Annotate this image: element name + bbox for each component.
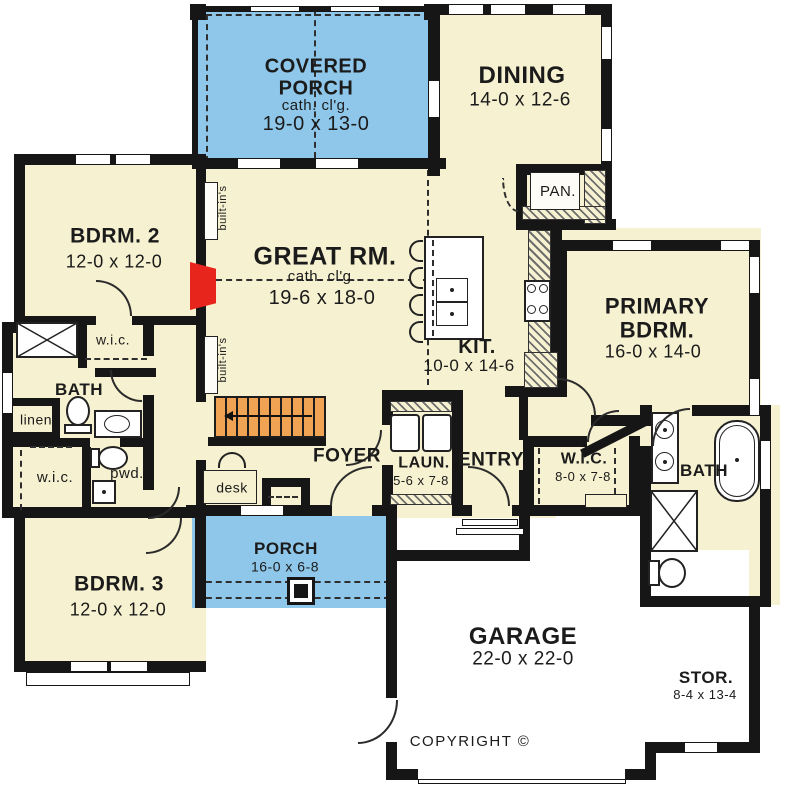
range-burner [539,305,548,314]
room-label-bath-left: BATH [55,381,103,399]
porch-edge-dashed-line [206,14,208,162]
laundry-counter [390,494,452,505]
window [115,154,151,165]
room-label-wic-upper: w.i.c. [96,332,130,347]
room-label-pantry: PAN. [540,184,576,200]
room-dims-primary-wic: 8-0 x 7-8 [555,470,611,484]
window [490,4,526,15]
wall [195,512,206,608]
builtins-label: built-in's [218,185,230,230]
room-label-dining: DINING [479,63,566,89]
dryer [422,414,452,452]
toilet-bowl [66,396,90,426]
room-dims-bedroom2: 12-0 x 12-0 [66,252,163,271]
room-label-foyer: FOYER [313,447,381,468]
room-dims-covered-porch: 19-0 x 13-0 [263,114,370,136]
sink-drain [663,460,667,464]
window [237,158,281,169]
fireplace [190,262,216,310]
window [612,240,652,251]
door-arc [358,700,398,744]
entry-step [456,528,524,535]
wall [519,390,528,440]
built-in-niche [204,182,218,240]
wall [551,219,562,359]
room-label-porch: PORCH [254,540,318,558]
wall [143,395,154,443]
range-burner [527,284,536,293]
room-label-linen: linen [20,412,52,427]
wall [523,436,534,516]
window [315,158,359,169]
wall [428,4,440,84]
room-dims-kitchen: 10-0 x 14-6 [423,357,515,375]
stairs-direction-line [232,415,312,417]
wall [428,118,440,176]
wall [2,322,13,518]
room-dims-dining: 14-0 x 12-6 [469,91,571,112]
window [749,378,760,416]
room-label-entry: ENTRY [458,451,524,472]
wall [760,405,771,607]
powder-toilet-tank [90,448,100,468]
primary-toilet-bowl [658,558,686,588]
window [749,256,760,294]
wall [14,154,25,330]
porch-column-core [294,584,308,598]
range-burner [527,305,536,314]
wall [397,550,529,561]
window [601,26,612,60]
closet-shelf-dashed [30,446,72,448]
sink-drain [102,490,106,494]
builtins-label: built-in's [218,337,230,382]
washer [390,414,420,452]
wall [78,316,87,368]
wall [519,516,530,561]
window [2,372,13,414]
window [552,4,586,15]
room-label-wic-lower: w.i.c. [37,470,73,486]
tub-drain [735,458,739,462]
wall [629,436,640,516]
wall [382,390,462,401]
shower [16,322,78,358]
wall [301,478,310,516]
closet-rod-dashed [538,448,540,504]
range-burner [539,284,548,293]
wall [192,6,198,169]
window [448,4,484,15]
room-label-primary-wic: W.I.C. [561,450,608,467]
window [75,154,111,165]
window [601,128,612,162]
bay-window-outline [26,672,190,686]
wall [2,507,206,518]
window [684,742,718,753]
garage-door-line [418,779,626,784]
wall [749,607,760,753]
window [720,240,750,251]
wall [382,465,393,516]
room-note-great-room: cath. cl'g. [288,269,356,285]
room-dims-laundry: 5-6 x 7-8 [393,474,449,488]
window [330,6,380,12]
room-label-great-room: GREAT RM. [254,244,397,271]
room-label-covered-porch: COVERED PORCH [251,56,381,99]
primary-toilet-tank [648,560,660,586]
desk-label: desk [216,480,248,495]
wall [192,6,440,12]
built-in-niche [204,336,218,394]
room-dims-great-room: 19-6 x 18-0 [269,288,376,310]
wall [143,443,154,490]
vanity-sink [104,415,130,433]
wall [143,316,154,356]
window [760,440,771,490]
room-label-bedroom2: BDRM. 2 [70,226,160,249]
window [240,505,284,516]
entry-step [462,519,518,526]
window [250,6,300,12]
room-dims-bedroom3: 12-0 x 12-0 [70,600,167,619]
sink-drain [450,312,454,316]
window [70,661,108,672]
room-dims-primary-bedroom: 16-0 x 14-0 [605,342,702,361]
room-label-storage: STOR. [679,669,733,687]
closet-shelf-dashed [268,496,298,498]
room-dims-storage: 8-4 x 13-4 [673,688,737,702]
window [110,661,148,672]
closet-rod-dashed [20,450,22,510]
wic-shelf [585,494,627,508]
sink-drain [450,288,454,292]
wall [208,437,326,446]
laundry-counter [390,401,452,412]
window [428,80,440,118]
room-note-covered-porch: cath. cl'g. [282,98,350,114]
kitchen-counter-corner [524,352,558,388]
room-dims-porch: 16-0 x 6-8 [251,559,319,574]
room-label-primary-bath: BATH [680,462,728,480]
primary-shower [650,490,698,552]
wic-shelf-dashed [85,358,147,360]
room-label-garage: GARAGE [469,624,577,650]
room-label-powder: pwd. [110,466,144,482]
copyright-label: COPYRIGHT © [410,734,531,750]
room-label-primary-bedroom: PRIMARY BDRM. [592,294,722,342]
room-label-laundry: LAUN. [398,454,449,471]
room-dims-garage: 22-0 x 22-0 [472,650,574,671]
island-overhang-dashed [432,240,434,336]
wall [452,505,472,516]
toilet-tank [64,424,92,434]
wall [386,516,397,698]
floor-plan: COVERED PORCH cath. cl'g. 19-0 x 13-0 DI… [0,0,796,800]
wall [640,596,771,607]
wall [386,769,418,780]
room-label-bedroom3: BDRM. 3 [74,574,164,597]
porch-edge-dashed-line [206,14,430,16]
stairs-arrow-icon [224,411,233,421]
wall [14,512,25,672]
